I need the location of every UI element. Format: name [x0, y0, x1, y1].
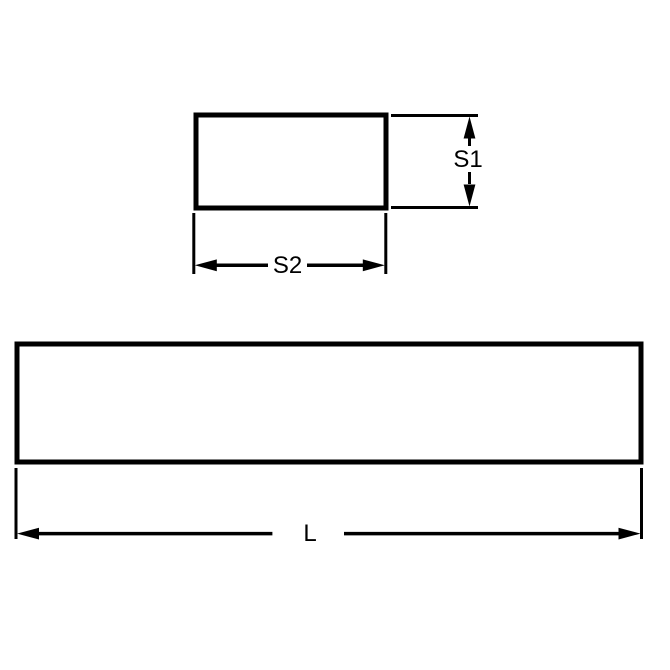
svg-text:S1: S1 [453, 146, 482, 173]
svg-text:S2: S2 [273, 252, 302, 279]
svg-text:L: L [303, 520, 316, 547]
